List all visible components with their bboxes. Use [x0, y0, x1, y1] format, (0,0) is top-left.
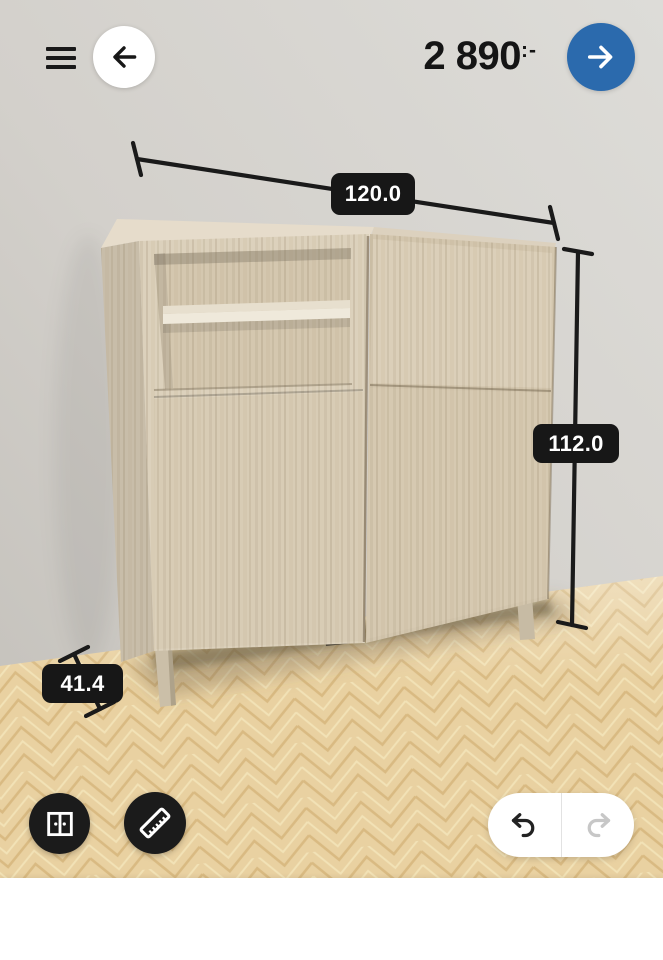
product-tabbar: BESTÅ EKET	[0, 878, 663, 960]
wardrobe-doors-icon	[43, 807, 77, 841]
price-currency-suffix: :-	[521, 39, 537, 62]
right-unit-grain	[366, 234, 556, 643]
measure-button[interactable]	[124, 792, 186, 854]
price: 2 890:-	[423, 34, 537, 79]
undo-arrow-icon	[509, 810, 539, 840]
next-button[interactable]	[567, 23, 635, 91]
price-amount: 2 890	[423, 34, 521, 78]
height-dimension-label: 112.0	[533, 424, 619, 463]
besta-planner-app: 120.0 112.0 41.4 2 890:-	[0, 0, 663, 960]
back-button[interactable]	[93, 26, 155, 88]
3d-viewport[interactable]: 120.0 112.0 41.4	[0, 0, 663, 878]
hamburger-bar	[46, 56, 76, 60]
hamburger-bar	[46, 47, 76, 51]
hamburger-bar	[46, 65, 76, 69]
ruler-icon	[136, 804, 174, 842]
cabinet-doors-button[interactable]	[29, 793, 90, 854]
history-controls	[488, 793, 634, 857]
redo-button[interactable]	[562, 793, 635, 857]
arrow-right-icon	[583, 39, 619, 75]
width-dimension-label: 120.0	[331, 173, 415, 215]
left-door-grain	[154, 392, 365, 649]
depth-dimension-label: 41.4	[42, 664, 123, 703]
arrow-left-icon	[107, 40, 141, 74]
undo-button[interactable]	[488, 793, 561, 857]
hamburger-icon[interactable]	[46, 47, 76, 69]
redo-arrow-icon	[583, 810, 613, 840]
